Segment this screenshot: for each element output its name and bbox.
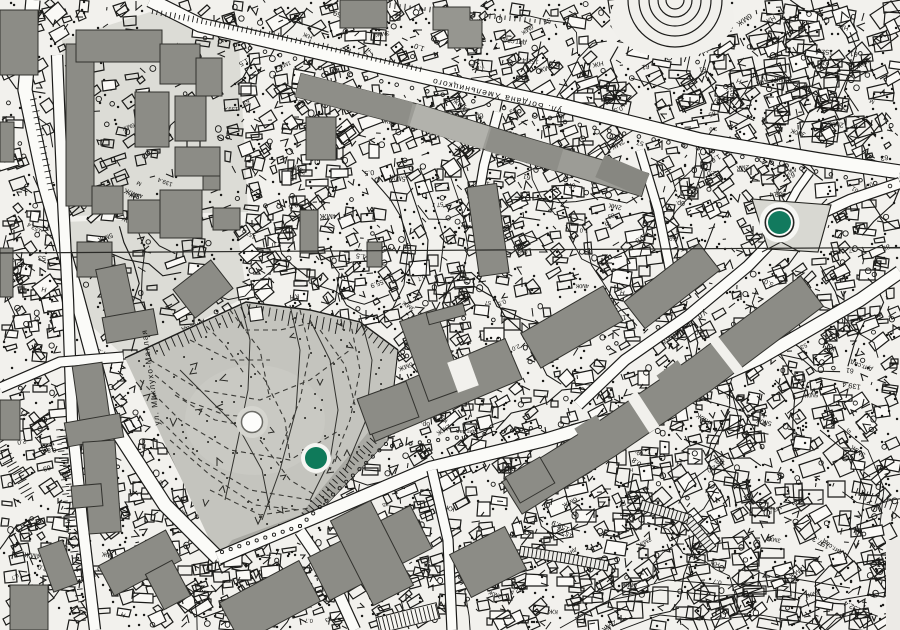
- svg-text:2.0: 2.0: [813, 93, 824, 102]
- svg-text:КЖ: КЖ: [824, 344, 836, 352]
- svg-text:5МЖ: 5МЖ: [804, 391, 818, 398]
- svg-text:3.0: 3.0: [754, 72, 764, 80]
- svg-text:2.0: 2.0: [271, 240, 281, 248]
- svg-text:Н: Н: [629, 466, 634, 472]
- svg-text:0.7: 0.7: [305, 617, 313, 623]
- svg-text:61: 61: [641, 62, 650, 70]
- svg-text:КН: КН: [289, 292, 299, 302]
- svg-text:4МЖ: 4МЖ: [320, 212, 337, 221]
- svg-text:бр.: бр.: [675, 199, 685, 208]
- svg-text:2.0: 2.0: [709, 125, 717, 132]
- svg-text:дит.сад: дит.сад: [456, 428, 476, 434]
- svg-text:0.5: 0.5: [364, 168, 375, 178]
- svg-text:61: 61: [849, 49, 858, 59]
- svg-text:53: 53: [38, 254, 46, 262]
- svg-text:2МК: 2МК: [736, 163, 749, 171]
- svg-text:КЖ: КЖ: [548, 607, 558, 614]
- svg-text:КЖ: КЖ: [102, 550, 113, 558]
- svg-text:4МЖ: 4МЖ: [128, 191, 143, 199]
- svg-text:0.7: 0.7: [714, 456, 725, 464]
- svg-text:0.8: 0.8: [793, 497, 803, 505]
- svg-text:4МЖ: 4МЖ: [575, 282, 589, 288]
- svg-text:59: 59: [668, 234, 675, 241]
- svg-text:1.0: 1.0: [579, 226, 588, 233]
- svg-text:57: 57: [485, 299, 491, 305]
- svg-text:139.4: 139.4: [224, 105, 238, 111]
- svg-text:2.0: 2.0: [707, 169, 716, 176]
- svg-text:2МК: 2МК: [828, 119, 844, 130]
- svg-text:63: 63: [880, 153, 889, 162]
- svg-text:бМЖ: бМЖ: [622, 580, 637, 589]
- svg-text:57: 57: [770, 77, 777, 83]
- svg-text:61: 61: [698, 65, 706, 73]
- svg-text:152.4: 152.4: [815, 48, 833, 55]
